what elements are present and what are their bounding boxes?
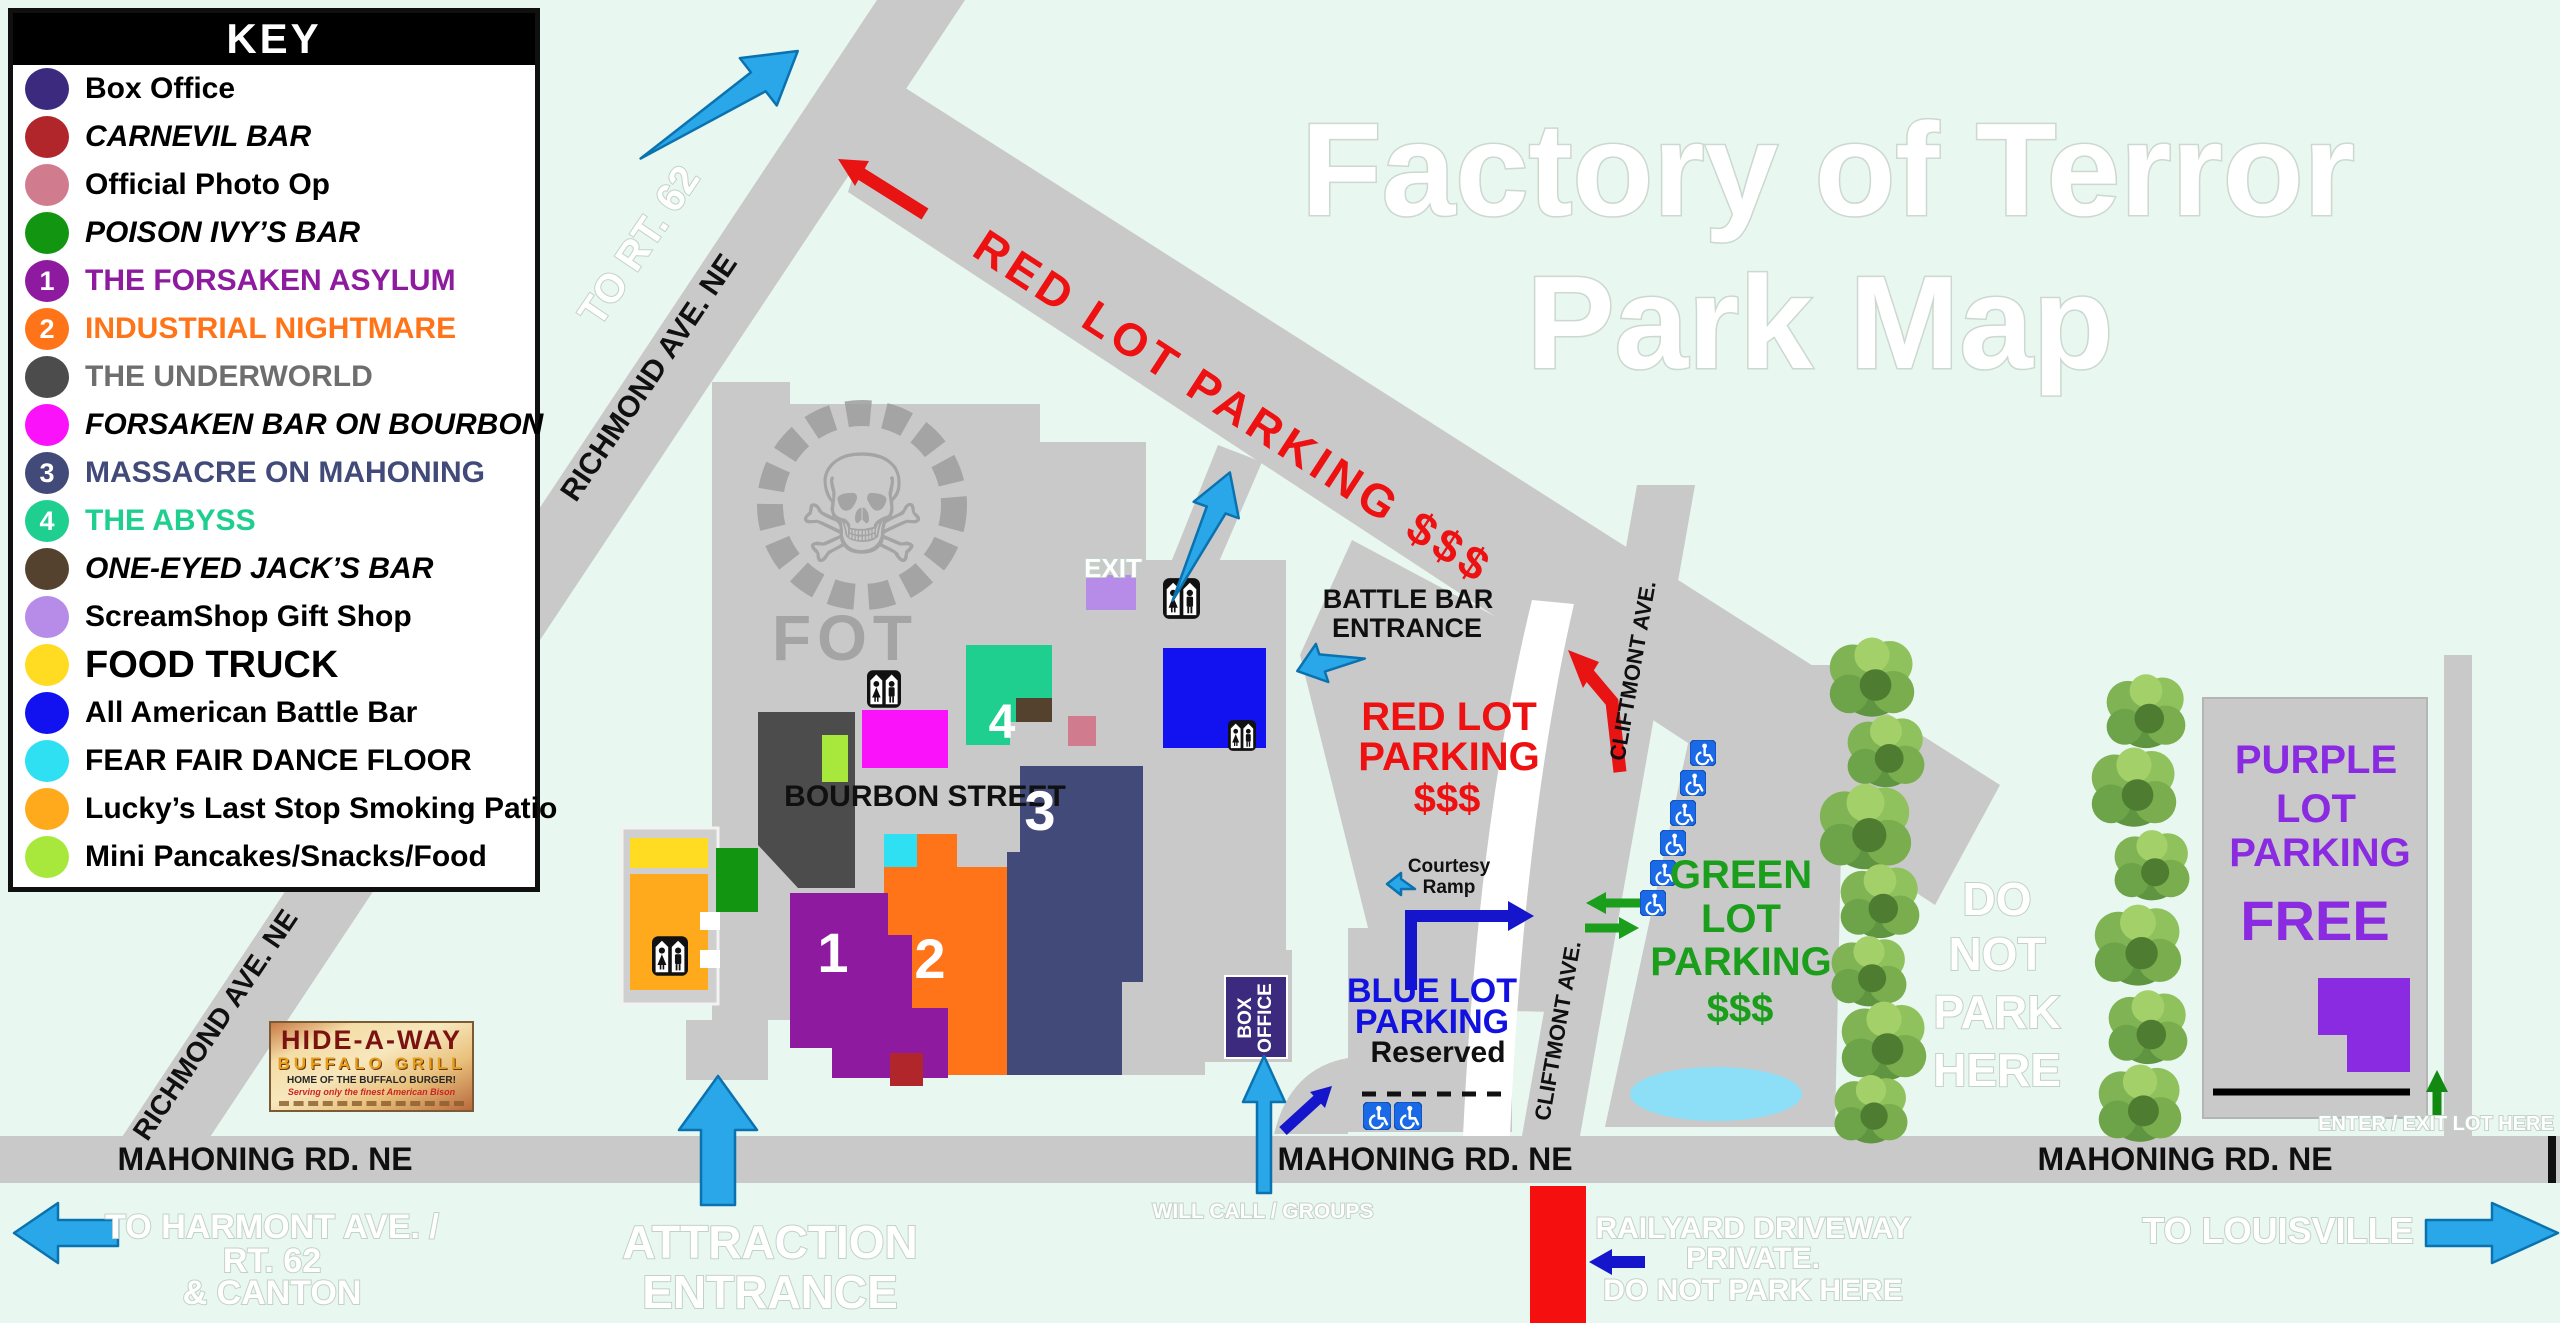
key-swatch-icon: 3 bbox=[25, 452, 69, 494]
restroom-icon bbox=[1228, 720, 1256, 751]
sign-line4: Serving only the finest American Bison bbox=[271, 1087, 472, 1097]
key-item-9: 4THE ABYSS bbox=[13, 497, 535, 545]
red-lot-label: $$$ bbox=[1414, 777, 1481, 821]
handicap-icon bbox=[1363, 1102, 1391, 1130]
green-lot-label: GREEN bbox=[1670, 853, 1812, 897]
handicap-icon bbox=[1640, 890, 1666, 916]
tree bbox=[1832, 936, 1907, 1006]
purple-lot-label: LOT bbox=[2276, 787, 2356, 831]
page-title: Factory of Terror Park Map bbox=[1301, 96, 2355, 396]
railyard-label: PRIVATE. bbox=[1686, 1242, 1820, 1275]
arrow-to-louisville bbox=[2426, 1203, 2558, 1263]
to-harmont-label: & CANTON bbox=[183, 1274, 362, 1312]
do-not-park-label: HERE bbox=[1933, 1044, 2061, 1096]
industrial-number: 2 bbox=[914, 927, 945, 990]
restroom-icon bbox=[867, 670, 901, 707]
tree bbox=[2115, 830, 2190, 900]
handicap-icon bbox=[1680, 770, 1706, 796]
key-label: INDUSTRIAL NIGHTMARE bbox=[85, 312, 456, 346]
key-item-4: 1THE FORSAKEN ASYLUM bbox=[13, 257, 535, 305]
key-swatch-icon bbox=[25, 788, 69, 830]
key-item-7: FORSAKEN BAR ON BOURBON bbox=[13, 401, 535, 449]
building-apron bbox=[1108, 1020, 1205, 1075]
key-header: KEY bbox=[13, 13, 535, 65]
to-louisville-label: TO LOUISVILLE bbox=[2142, 1210, 2413, 1251]
luckys-patio-block bbox=[622, 828, 720, 1004]
courtesy-ramp-label: Ramp bbox=[1423, 877, 1476, 898]
key-item-13: All American Battle Bar bbox=[13, 689, 535, 737]
key-badge: 4 bbox=[39, 506, 54, 537]
tree bbox=[1830, 638, 1914, 717]
key-swatch-icon bbox=[25, 212, 69, 254]
sign-line1: HIDE-A-WAY bbox=[271, 1025, 472, 1055]
purple-lot-free-label: FREE bbox=[2240, 889, 2389, 952]
sign-line2: BUFFALO GRILL bbox=[271, 1055, 472, 1073]
tree bbox=[1841, 864, 1920, 938]
key-label: ONE-EYED JACK’S BAR bbox=[85, 552, 433, 586]
blue-lot-reserved-label: Reserved bbox=[1370, 1036, 1505, 1069]
key-label: POISON IVY’S BAR bbox=[85, 216, 360, 250]
key-swatch-icon: 4 bbox=[25, 500, 69, 542]
building-official-photo-op bbox=[1068, 716, 1096, 746]
fot-text: FOT bbox=[772, 602, 918, 674]
will-call-label: WILL CALL / GROUPS bbox=[1153, 1200, 1374, 1223]
box-office-label: OFFICE bbox=[1255, 983, 1276, 1053]
arrow-green-right-head bbox=[1619, 917, 1639, 939]
red-lot-label: PARKING bbox=[1358, 735, 1539, 779]
key-swatch-icon bbox=[25, 68, 69, 110]
key-label: FOOD TRUCK bbox=[85, 644, 338, 687]
do-not-park-label: PARK bbox=[1934, 986, 2061, 1038]
tree bbox=[2099, 1064, 2182, 1141]
key-item-5: 2INDUSTRIAL NIGHTMARE bbox=[13, 305, 535, 353]
tree-row-east bbox=[2092, 674, 2190, 1142]
key-label: ScreamShop Gift Shop bbox=[85, 600, 412, 634]
key-swatch-icon bbox=[25, 836, 69, 878]
sign-line3: HOME OF THE BUFFALO BURGER! bbox=[271, 1075, 472, 1087]
attraction-entrance-label: ENTRANCE bbox=[642, 1266, 898, 1318]
key-label: MASSACRE ON MAHONING bbox=[85, 456, 485, 490]
fot-skull-icon: ☠ bbox=[795, 426, 929, 594]
pond bbox=[1630, 1067, 1802, 1121]
box-office-label: BOX bbox=[1235, 997, 1256, 1039]
purple-lot-label: PURPLE bbox=[2235, 738, 2397, 782]
key-item-12: FOOD TRUCK bbox=[13, 641, 535, 689]
title-line1: Factory of Terror bbox=[1301, 96, 2355, 243]
handicap-icon bbox=[1394, 1102, 1422, 1130]
tree bbox=[1835, 1075, 1908, 1143]
building-food-truck bbox=[630, 838, 708, 868]
do-not-park-label: DO bbox=[1963, 873, 2032, 925]
red-lot-label: RED LOT bbox=[1361, 695, 1537, 739]
key-swatch-icon bbox=[25, 404, 69, 446]
do-not-park-label: NOT bbox=[1948, 928, 2045, 980]
key-label: FORSAKEN BAR ON BOURBON bbox=[85, 408, 543, 442]
key-badge: 3 bbox=[39, 458, 54, 489]
key-swatch-icon: 2 bbox=[25, 308, 69, 350]
tree bbox=[2092, 748, 2176, 827]
handicap-icon bbox=[1690, 740, 1716, 766]
key-label: FEAR FAIR DANCE FLOOR bbox=[85, 744, 472, 778]
park-map-canvas: Factory of Terror Park Map ☠ FOT bbox=[0, 0, 2560, 1323]
patio-gate bbox=[700, 950, 720, 968]
green-lot-label: PARKING bbox=[1650, 940, 1831, 984]
road-end-marker bbox=[2548, 1136, 2556, 1183]
key-badge: 2 bbox=[39, 314, 54, 345]
green-lot-label: $$$ bbox=[1707, 987, 1774, 1031]
key-swatch-icon bbox=[25, 116, 69, 158]
asylum-number: 1 bbox=[817, 921, 848, 984]
massacre-number: 3 bbox=[1024, 779, 1055, 842]
attraction-entrance-label: ATTRACTION bbox=[622, 1216, 918, 1268]
handicap-icon bbox=[1670, 800, 1696, 826]
key-swatch-icon bbox=[25, 356, 69, 398]
arrow-to-harmont bbox=[14, 1203, 118, 1263]
mahoning-label-mid: MAHONING RD. NE bbox=[1277, 1141, 1572, 1177]
key-item-14: FEAR FAIR DANCE FLOOR bbox=[13, 737, 535, 785]
key-item-11: ScreamShop Gift Shop bbox=[13, 593, 535, 641]
key-label: THE FORSAKEN ASYLUM bbox=[85, 264, 456, 298]
east-side-road bbox=[2444, 655, 2472, 1136]
key-swatch-icon: 1 bbox=[25, 260, 69, 302]
building-fear-fair-dance-floor bbox=[884, 834, 917, 867]
railyard-label: RAILYARD DRIVEWAY bbox=[1595, 1212, 1910, 1245]
tree bbox=[2107, 674, 2186, 748]
key-item-8: 3MASSACRE ON MAHONING bbox=[13, 449, 535, 497]
tree bbox=[2109, 990, 2188, 1064]
courtesy-ramp-label: Courtesy bbox=[1408, 856, 1491, 877]
mahoning-label-east: MAHONING RD. NE bbox=[2037, 1141, 2332, 1177]
key-label: Official Photo Op bbox=[85, 168, 330, 202]
key-label: THE ABYSS bbox=[85, 504, 256, 538]
green-lot-label: LOT bbox=[1701, 897, 1781, 941]
enter-exit-lot-label: ENTER / EXIT LOT HERE bbox=[2318, 1113, 2554, 1135]
key-item-0: Box Office bbox=[13, 65, 535, 113]
hideaway-grill-sign: HIDE-A-WAY BUFFALO GRILL HOME OF THE BUF… bbox=[269, 1021, 474, 1112]
building-one-eyed-jacks-bar bbox=[1016, 698, 1052, 722]
building-carnevil-bar bbox=[890, 1053, 923, 1086]
mahoning-label-west: MAHONING RD. NE bbox=[117, 1141, 412, 1177]
arrow-railyard-head bbox=[1589, 1249, 1612, 1275]
building-mini-pancakes bbox=[822, 735, 848, 782]
tree bbox=[1842, 1002, 1926, 1081]
key-badge: 1 bbox=[39, 266, 54, 297]
key-item-3: POISON IVY’S BAR bbox=[13, 209, 535, 257]
exit-label: EXIT bbox=[1084, 553, 1142, 583]
sign-rope-decoration bbox=[279, 1101, 464, 1106]
battle-bar-entrance-label: ENTRANCE bbox=[1332, 613, 1482, 643]
key-label: Lucky’s Last Stop Smoking Patio bbox=[85, 792, 557, 826]
key-item-1: CARNEVIL BAR bbox=[13, 113, 535, 161]
key-label: Mini Pancakes/Snacks/Food bbox=[85, 840, 487, 874]
key-label: All American Battle Bar bbox=[85, 696, 417, 730]
key-item-2: Official Photo Op bbox=[13, 161, 535, 209]
abyss-number: 4 bbox=[989, 696, 1016, 749]
tree bbox=[2095, 905, 2181, 986]
building-forsaken-bar-on-bourbon bbox=[862, 710, 948, 768]
to-harmont-label: TO HARMONT AVE. / bbox=[105, 1208, 439, 1246]
key-label: CARNEVIL BAR bbox=[85, 120, 311, 154]
key-item-15: Lucky’s Last Stop Smoking Patio bbox=[13, 785, 535, 833]
key-item-10: ONE-EYED JACK’S BAR bbox=[13, 545, 535, 593]
railyard-driveway bbox=[1530, 1186, 1586, 1323]
purple-lot-label: PARKING bbox=[2229, 831, 2410, 875]
key-label: THE UNDERWORLD bbox=[85, 360, 373, 394]
key-item-6: THE UNDERWORLD bbox=[13, 353, 535, 401]
key-swatch-icon bbox=[25, 548, 69, 590]
key-item-16: Mini Pancakes/Snacks/Food bbox=[13, 833, 535, 881]
key-swatch-icon bbox=[25, 596, 69, 638]
patio-gate bbox=[700, 912, 720, 930]
title-line2: Park Map bbox=[1527, 249, 2114, 396]
key-swatch-icon bbox=[25, 692, 69, 734]
building-poison-ivys-bar bbox=[716, 848, 758, 912]
railyard-label: DO NOT PARK HERE bbox=[1603, 1274, 1902, 1307]
key-items: Box OfficeCARNEVIL BAROfficial Photo OpP… bbox=[13, 65, 535, 881]
restroom-icon bbox=[652, 936, 688, 976]
key-label: Box Office bbox=[85, 72, 235, 106]
key-swatch-icon bbox=[25, 644, 69, 686]
key-swatch-icon bbox=[25, 164, 69, 206]
key-swatch-icon bbox=[25, 740, 69, 782]
tree bbox=[1820, 784, 1911, 870]
entrance-walkway bbox=[686, 1020, 768, 1080]
tree bbox=[1848, 715, 1925, 787]
map-key-panel: KEY Box OfficeCARNEVIL BAROfficial Photo… bbox=[8, 8, 540, 892]
